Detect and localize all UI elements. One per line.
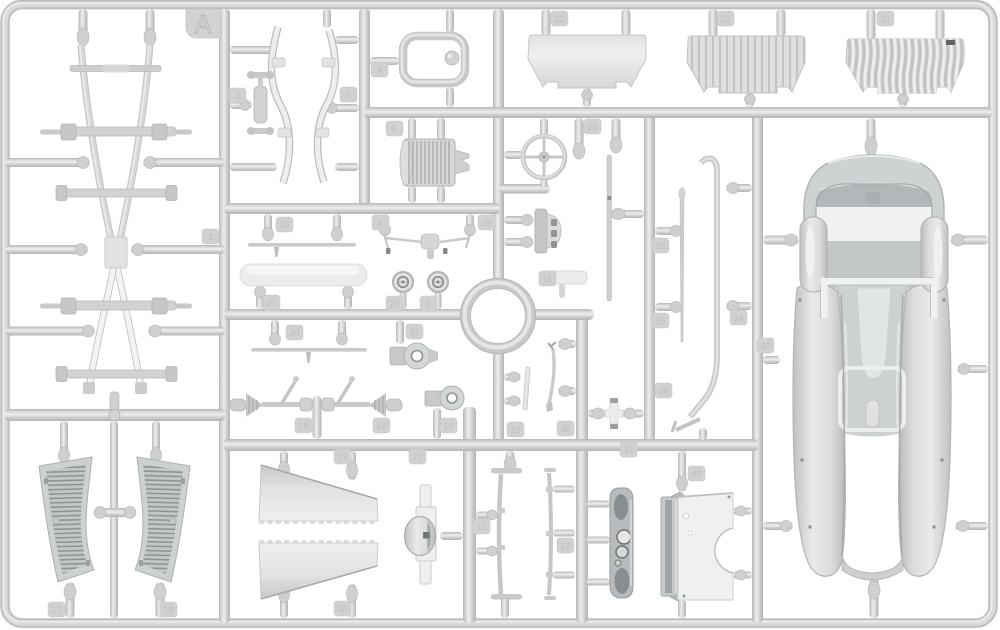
- svg-text:33: 33: [655, 241, 665, 251]
- svg-text:23: 23: [720, 14, 730, 24]
- svg-text:9: 9: [426, 299, 431, 309]
- svg-text:2: 2: [235, 91, 240, 101]
- svg-text:1: 1: [208, 232, 213, 242]
- svg-text:37: 37: [760, 341, 770, 351]
- svg-text:36: 36: [560, 424, 570, 434]
- svg-text:34: 34: [733, 313, 743, 323]
- svg-text:24: 24: [880, 14, 890, 24]
- svg-text:40: 40: [691, 469, 701, 479]
- svg-text:10: 10: [510, 425, 520, 435]
- svg-text:17: 17: [51, 605, 61, 615]
- svg-text:26: 26: [279, 220, 289, 230]
- svg-text:28: 28: [389, 299, 399, 309]
- svg-text:31: 31: [409, 327, 419, 337]
- svg-text:5: 5: [392, 124, 397, 134]
- svg-text:38: 38: [658, 386, 668, 396]
- svg-text:19: 19: [337, 452, 347, 462]
- svg-text:22: 22: [554, 14, 564, 24]
- svg-text:20: 20: [337, 604, 347, 614]
- svg-text:29: 29: [481, 218, 491, 228]
- svg-text:A: A: [194, 9, 212, 39]
- svg-text:25: 25: [587, 122, 597, 132]
- svg-text:14: 14: [443, 421, 453, 431]
- svg-text:6: 6: [378, 218, 383, 228]
- svg-text:4: 4: [377, 65, 382, 75]
- svg-text:15: 15: [376, 421, 386, 431]
- svg-text:35: 35: [655, 316, 665, 326]
- svg-text:12: 12: [476, 522, 486, 532]
- svg-text:18: 18: [163, 605, 173, 615]
- svg-text:30: 30: [289, 328, 299, 338]
- svg-text:11: 11: [543, 274, 552, 284]
- svg-text:3: 3: [346, 90, 351, 100]
- svg-text:41: 41: [623, 445, 633, 455]
- svg-text:16: 16: [298, 421, 308, 431]
- svg-text:27: 27: [266, 298, 276, 308]
- svg-text:21: 21: [412, 452, 422, 462]
- svg-text:13: 13: [560, 541, 570, 551]
